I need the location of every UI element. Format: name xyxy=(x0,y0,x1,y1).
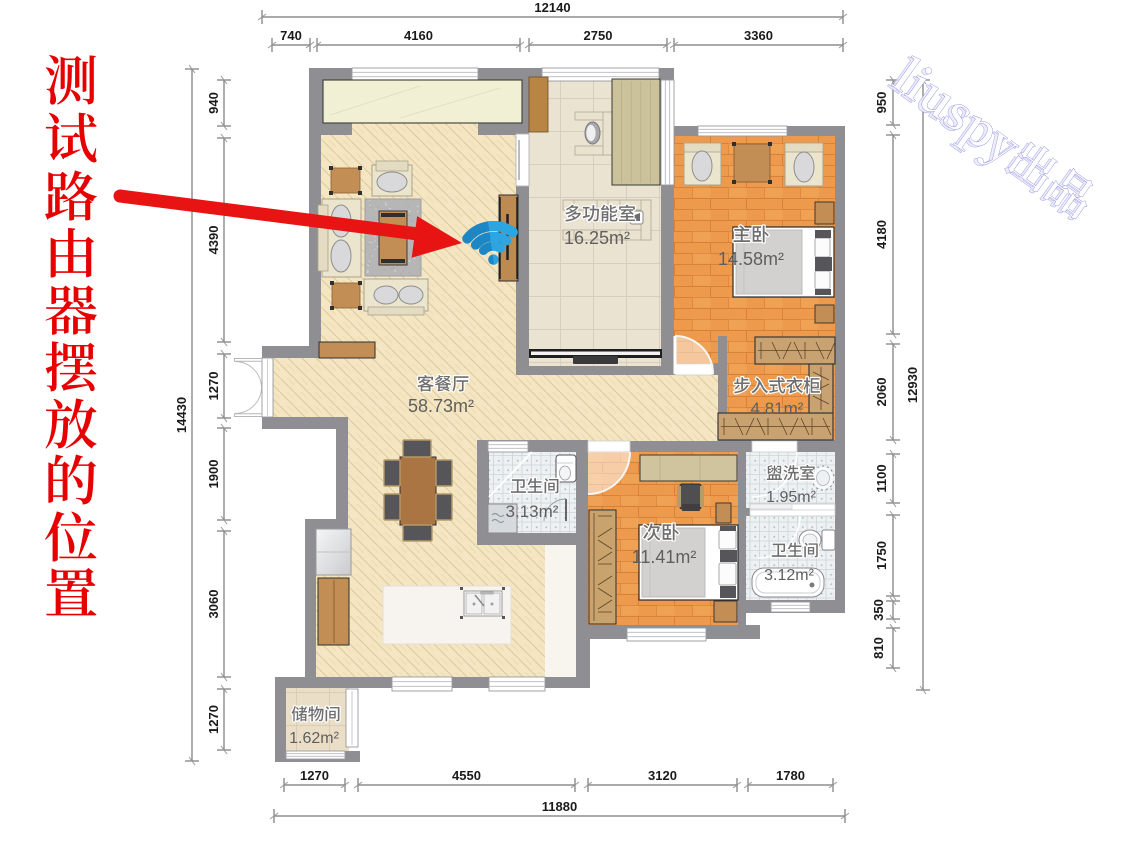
svg-text:1900: 1900 xyxy=(206,460,221,489)
svg-text:1270: 1270 xyxy=(206,372,221,401)
svg-text:4.81m²: 4.81m² xyxy=(751,399,804,418)
svg-text:3060: 3060 xyxy=(206,590,221,619)
svg-text:810: 810 xyxy=(871,637,886,659)
svg-text:4390: 4390 xyxy=(206,226,221,255)
svg-text:1.62m²: 1.62m² xyxy=(289,730,339,747)
svg-text:3.13m²: 3.13m² xyxy=(506,502,559,521)
svg-text:16.25m²: 16.25m² xyxy=(564,228,630,248)
svg-text:12140: 12140 xyxy=(534,0,570,15)
svg-text:1100: 1100 xyxy=(874,464,889,492)
svg-text:12930: 12930 xyxy=(905,367,920,403)
svg-text:740: 740 xyxy=(280,28,302,43)
svg-text:14430: 14430 xyxy=(174,397,189,433)
svg-text:3120: 3120 xyxy=(648,768,677,783)
svg-text:4550: 4550 xyxy=(452,768,481,783)
svg-text:3360: 3360 xyxy=(744,28,773,43)
svg-text:58.73m²: 58.73m² xyxy=(408,396,474,416)
svg-text:950: 950 xyxy=(874,92,889,114)
svg-text:3.12m²: 3.12m² xyxy=(764,567,814,584)
svg-text:2750: 2750 xyxy=(584,28,613,43)
svg-text:1780: 1780 xyxy=(776,768,805,783)
svg-text:1270: 1270 xyxy=(206,705,221,734)
svg-text:4180: 4180 xyxy=(874,220,889,249)
svg-text:940: 940 xyxy=(206,92,221,114)
svg-text:1.95m²: 1.95m² xyxy=(766,489,816,506)
svg-text:14.58m²: 14.58m² xyxy=(718,249,784,269)
svg-text:2060: 2060 xyxy=(874,378,889,407)
svg-text:1270: 1270 xyxy=(300,768,329,783)
svg-text:4160: 4160 xyxy=(404,28,433,43)
svg-text:1750: 1750 xyxy=(874,541,889,570)
svg-text:11.41m²: 11.41m² xyxy=(632,547,697,567)
svg-text:350: 350 xyxy=(871,599,886,621)
svg-text:11880: 11880 xyxy=(542,799,577,814)
